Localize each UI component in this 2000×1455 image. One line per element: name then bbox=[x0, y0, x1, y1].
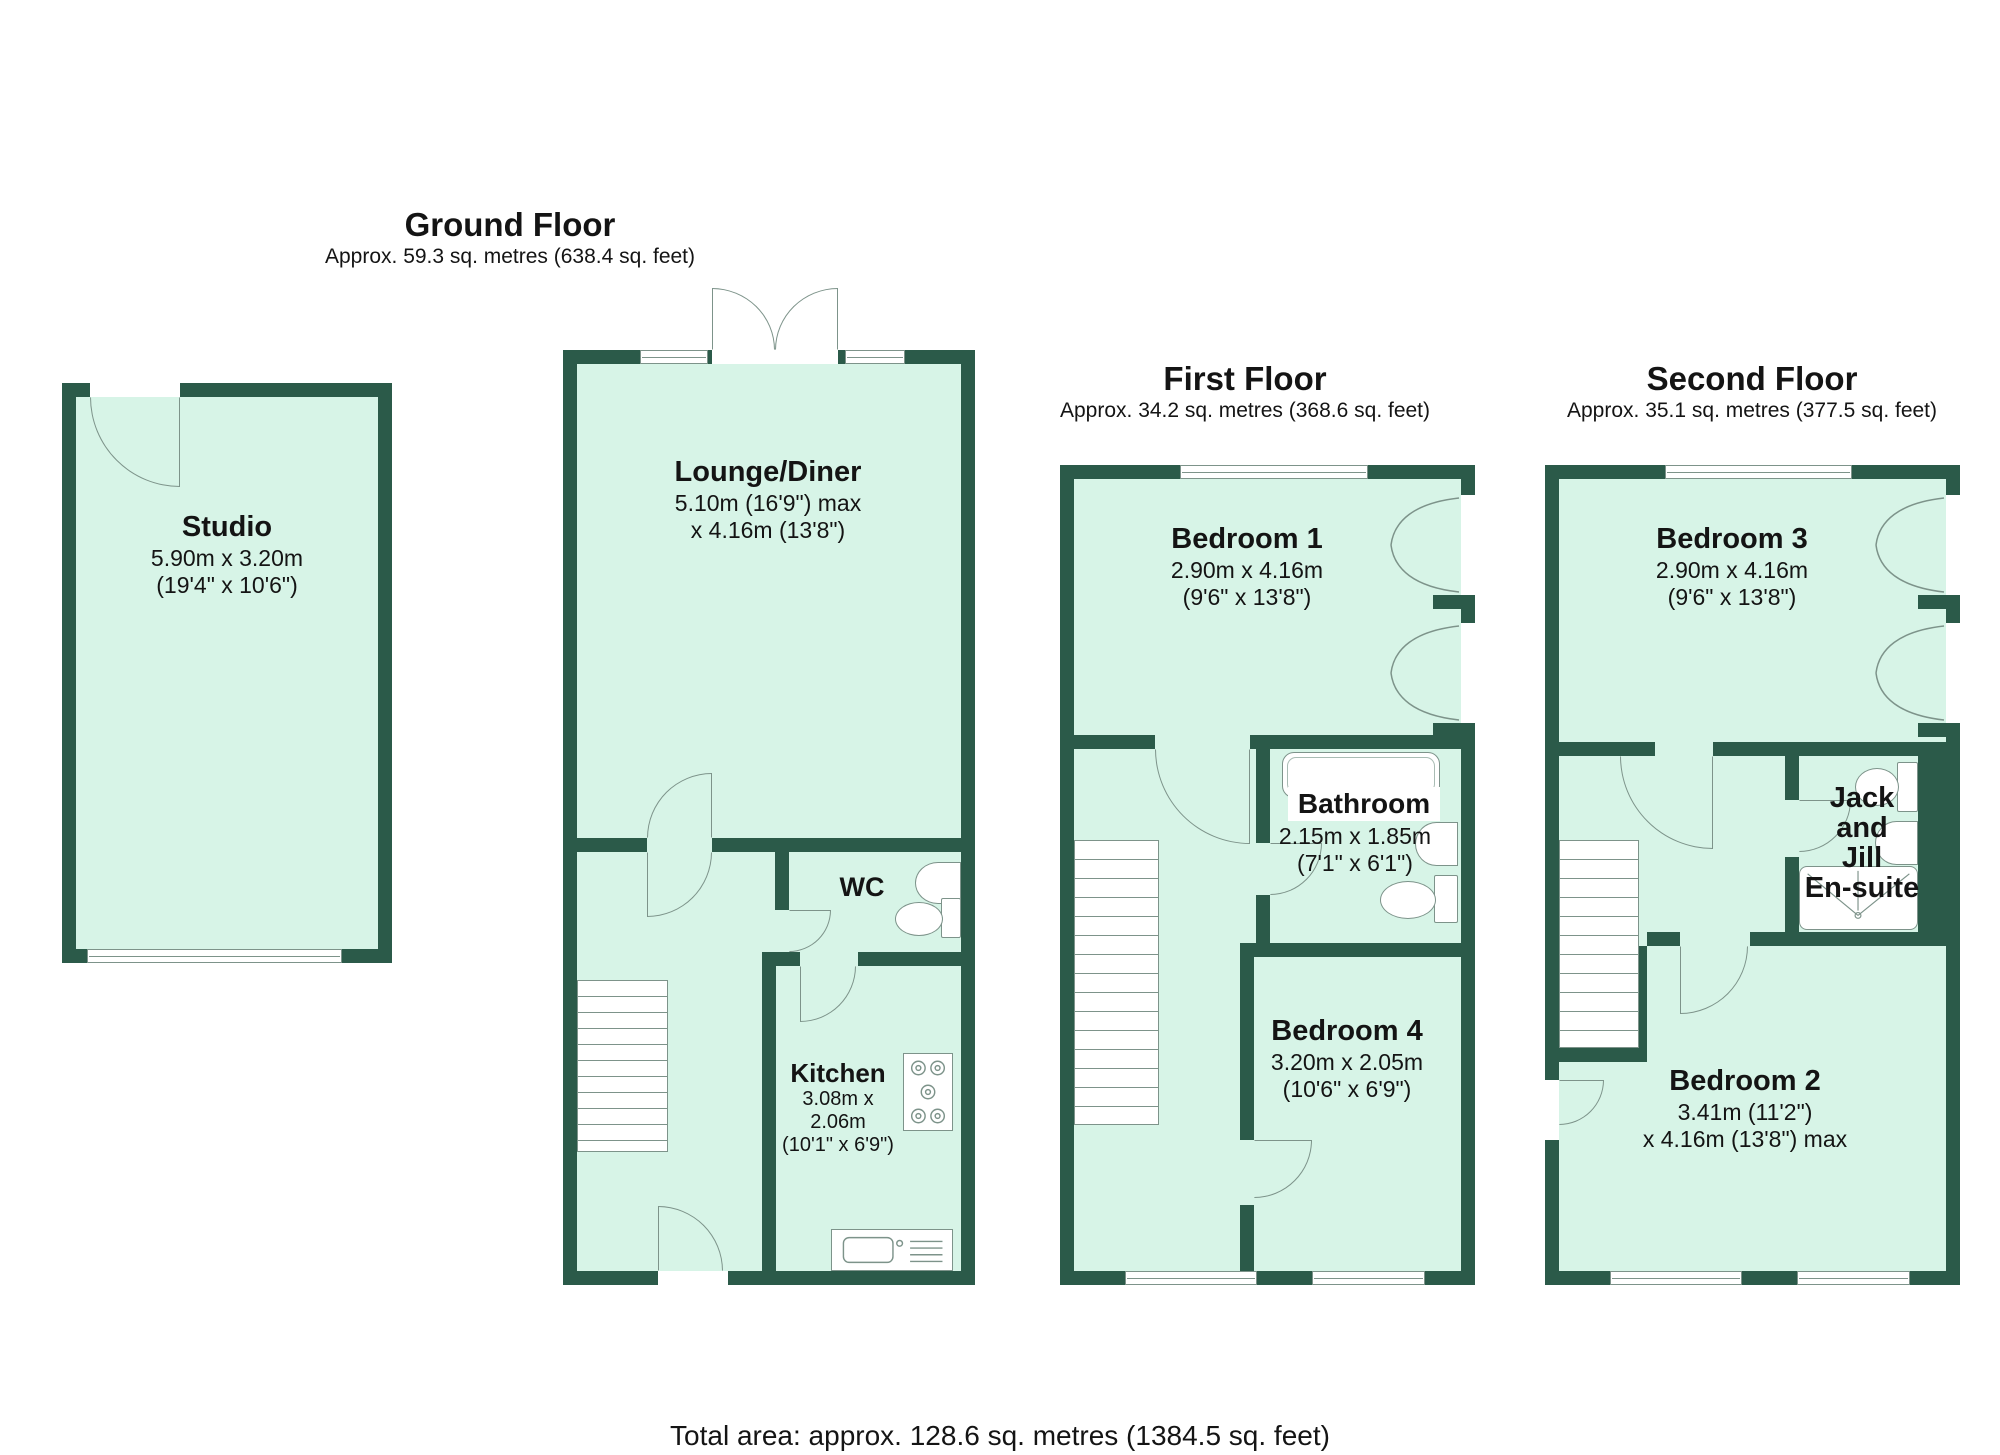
closet-opening bbox=[1461, 623, 1475, 723]
hob-burners-icon bbox=[904, 1054, 952, 1130]
studio-dim-imperial: (19'4" x 10'6") bbox=[77, 572, 377, 599]
toilet-cistern-fixture bbox=[1434, 875, 1458, 923]
french-door-right-arc bbox=[775, 288, 838, 350]
second-floor-title: Second Floor bbox=[1552, 360, 1952, 398]
ensuite-room-label: Jack and Jill En-suite bbox=[1795, 783, 1929, 903]
bedroom4-name: Bedroom 4 bbox=[1247, 1015, 1447, 1049]
wc-room-label: WC bbox=[832, 872, 892, 903]
bedroom4-dim-metric: 3.20m x 2.05m bbox=[1247, 1049, 1447, 1076]
closet-opening bbox=[1946, 623, 1960, 723]
wall-segment bbox=[577, 838, 647, 852]
bedroom4-room-label: Bedroom 4 3.20m x 2.05m (10'6" x 6'9") bbox=[1247, 1015, 1447, 1103]
lounge-dim-metric: 5.10m (16'9") max bbox=[603, 490, 933, 517]
wall-segment bbox=[1559, 1048, 1647, 1062]
ground-floor-subtitle: Approx. 59.3 sq. metres (638.4 sq. feet) bbox=[285, 245, 735, 269]
sink-fixture bbox=[831, 1229, 953, 1271]
first-floor-plan: Bedroom 1 2.90m x 4.16m (9'6" x 13'8") B… bbox=[1060, 465, 1475, 1285]
toilet-fixture bbox=[1380, 881, 1436, 919]
wall-segment bbox=[775, 852, 789, 910]
lounge-window-right bbox=[845, 350, 905, 364]
floorplan-canvas: Ground Floor Approx. 59.3 sq. metres (63… bbox=[0, 0, 2000, 1455]
bedroom1-room-label: Bedroom 1 2.90m x 4.16m (9'6" x 13'8") bbox=[1097, 523, 1397, 611]
wall-segment bbox=[1074, 735, 1155, 749]
second-floor-window-right bbox=[1797, 1271, 1910, 1285]
wall-segment bbox=[762, 952, 800, 966]
wall-segment bbox=[1240, 1205, 1254, 1271]
bathroom-dim-metric: 2.15m x 1.85m bbox=[1275, 823, 1435, 850]
bedroom3-window bbox=[1665, 465, 1852, 479]
bedroom3-dim-imperial: (9'6" x 13'8") bbox=[1582, 584, 1882, 611]
bedroom3-dim-metric: 2.90m x 4.16m bbox=[1582, 557, 1882, 584]
closet-doors bbox=[1861, 623, 1946, 723]
lounge-room-label: Lounge/Diner 5.10m (16'9") max x 4.16m (… bbox=[603, 456, 933, 544]
closet-doors bbox=[1376, 623, 1461, 723]
studio-plan: Studio 5.90m x 3.20m (19'4" x 10'6") bbox=[62, 383, 392, 963]
bedroom3-room-label: Bedroom 3 2.90m x 4.16m (9'6" x 13'8") bbox=[1582, 523, 1882, 611]
kitchen-room-label: Kitchen 3.08m x 2.06m (10'1" x 6'9") bbox=[773, 1058, 903, 1157]
wall-segment bbox=[1647, 932, 1680, 946]
bathroom-dims-label: 2.15m x 1.85m (7'1" x 6'1") bbox=[1275, 823, 1435, 877]
first-floor-title: First Floor bbox=[1045, 360, 1445, 398]
stairs bbox=[577, 980, 668, 1152]
wall-segment bbox=[1256, 895, 1270, 943]
wall-segment bbox=[1750, 932, 1946, 946]
bathroom-name: Bathroom bbox=[1288, 787, 1440, 821]
wall-segment bbox=[1559, 742, 1655, 756]
lounge-name: Lounge/Diner bbox=[603, 456, 933, 490]
bedroom2-name: Bedroom 2 bbox=[1595, 1065, 1895, 1099]
stairs bbox=[1559, 840, 1639, 1048]
french-door-opening bbox=[712, 350, 838, 364]
bedroom1-name: Bedroom 1 bbox=[1097, 523, 1397, 557]
bedroom2-dim-metric: 3.41m (11'2") bbox=[1595, 1099, 1895, 1126]
wall-segment bbox=[858, 952, 961, 966]
studio-name: Studio bbox=[77, 511, 377, 545]
wall-segment bbox=[1918, 595, 1946, 609]
bedroom2-room-label: Bedroom 2 3.41m (11'2") x 4.16m (13'8") … bbox=[1595, 1065, 1895, 1153]
wall-segment bbox=[1256, 749, 1270, 843]
bathroom-dim-imperial: (7'1" x 6'1") bbox=[1275, 850, 1435, 877]
kitchen-name: Kitchen bbox=[773, 1058, 903, 1088]
wall-segment bbox=[1713, 742, 1946, 756]
second-floor-plan: Bedroom 3 2.90m x 4.16m (9'6" x 13'8") J… bbox=[1545, 465, 1960, 1285]
second-floor-window-left bbox=[1610, 1271, 1742, 1285]
bedroom4-dim-imperial: (10'6" x 6'9") bbox=[1247, 1076, 1447, 1103]
hob-fixture bbox=[903, 1053, 953, 1131]
bedroom1-dim-imperial: (9'6" x 13'8") bbox=[1097, 584, 1397, 611]
entrance-door-opening bbox=[658, 1271, 728, 1285]
landing-door-opening bbox=[1545, 1080, 1559, 1140]
closet-opening bbox=[1461, 495, 1475, 595]
total-area-label: Total area: approx. 128.6 sq. metres (13… bbox=[500, 1420, 1500, 1452]
studio-floor bbox=[76, 397, 378, 949]
studio-window bbox=[87, 949, 342, 963]
studio-door-opening bbox=[90, 383, 180, 397]
lounge-window-left bbox=[640, 350, 708, 364]
ground-floor-title: Ground Floor bbox=[310, 206, 710, 244]
first-floor-window-right bbox=[1312, 1271, 1425, 1285]
second-floor-subtitle: Approx. 35.1 sq. metres (377.5 sq. feet) bbox=[1542, 399, 1962, 423]
closet-opening bbox=[1946, 495, 1960, 595]
ensuite-line-2: and bbox=[1795, 813, 1929, 843]
toilet-cistern-fixture bbox=[941, 898, 961, 938]
ensuite-line-1: Jack bbox=[1795, 783, 1929, 813]
wall-segment bbox=[1918, 723, 1946, 737]
french-door-left-arc bbox=[712, 288, 775, 350]
wall-segment bbox=[1240, 943, 1461, 957]
bedroom3-name: Bedroom 3 bbox=[1582, 523, 1882, 557]
sink-icon bbox=[832, 1230, 952, 1270]
wall-segment bbox=[712, 838, 961, 852]
studio-room-label: Studio 5.90m x 3.20m (19'4" x 10'6") bbox=[77, 511, 377, 599]
bedroom1-window bbox=[1180, 465, 1368, 479]
toilet-fixture bbox=[895, 902, 943, 936]
stairs bbox=[1074, 840, 1159, 1125]
wall-segment bbox=[1433, 595, 1461, 609]
first-floor-window-left bbox=[1125, 1271, 1257, 1285]
kitchen-dim-imperial: (10'1" x 6'9") bbox=[773, 1134, 903, 1157]
bedroom1-dim-metric: 2.90m x 4.16m bbox=[1097, 557, 1397, 584]
bedroom2-dim-imperial: x 4.16m (13'8") max bbox=[1595, 1126, 1895, 1153]
ensuite-line-3: Jill bbox=[1795, 843, 1929, 873]
wall-segment bbox=[1250, 735, 1461, 749]
first-floor-subtitle: Approx. 34.2 sq. metres (368.6 sq. feet) bbox=[1035, 399, 1455, 423]
kitchen-dim-metric: 3.08m x 2.06m bbox=[773, 1088, 903, 1134]
lounge-dim-imperial: x 4.16m (13'8") bbox=[603, 517, 933, 544]
ensuite-line-4: En-suite bbox=[1795, 873, 1929, 903]
studio-dim-metric: 5.90m x 3.20m bbox=[77, 545, 377, 572]
ground-floor-plan: WC bbox=[563, 350, 975, 1285]
